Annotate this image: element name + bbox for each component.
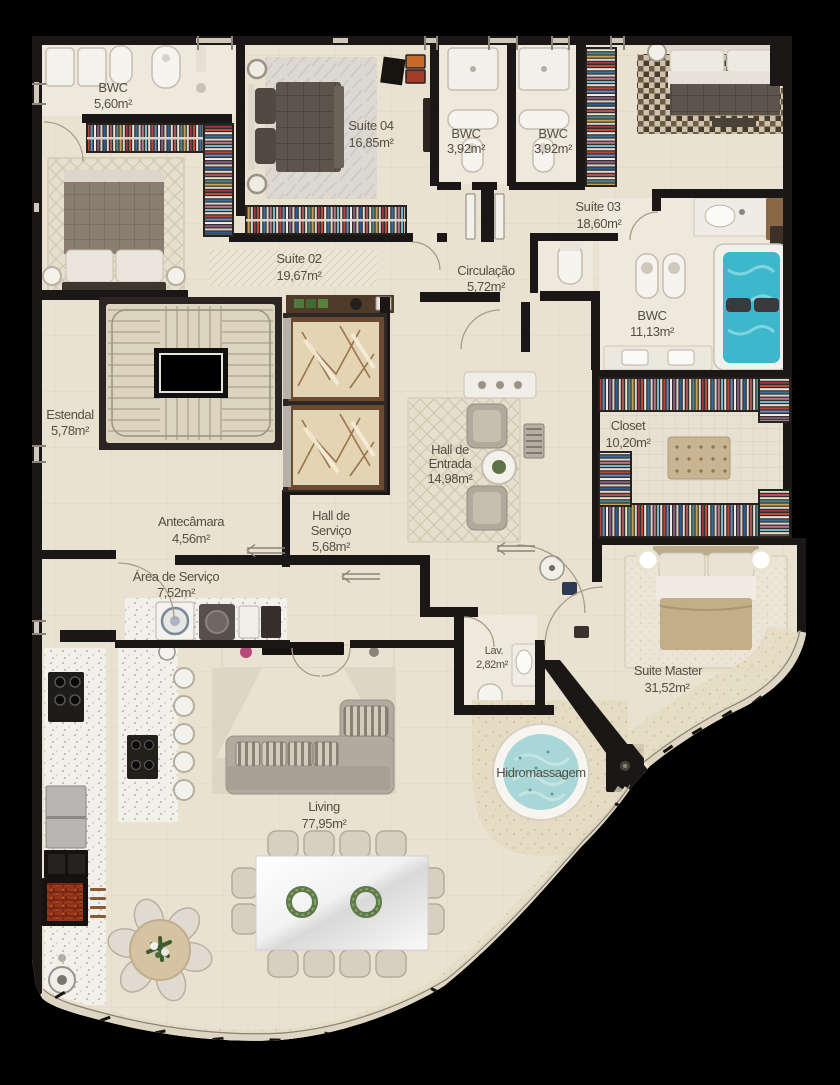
svg-text:10,20m²: 10,20m² <box>606 435 652 450</box>
svg-text:4,56m²: 4,56m² <box>172 531 211 546</box>
svg-text:Área de Serviço: Área de Serviço <box>133 569 220 584</box>
svg-text:Suíte 03: Suíte 03 <box>575 199 620 214</box>
svg-text:Suite Master: Suite Master <box>634 663 703 678</box>
svg-text:Serviço: Serviço <box>311 523 352 538</box>
svg-text:2,82m²: 2,82m² <box>476 659 509 671</box>
svg-text:Living: Living <box>308 799 340 814</box>
svg-text:77,95m²: 77,95m² <box>302 816 348 831</box>
svg-text:7,52m²: 7,52m² <box>157 585 196 600</box>
svg-text:BWC: BWC <box>637 308 666 323</box>
svg-text:5,60m²: 5,60m² <box>94 96 133 111</box>
svg-text:18,60m²: 18,60m² <box>577 216 623 231</box>
svg-text:Suíte 02: Suíte 02 <box>276 251 321 266</box>
svg-text:Circulação: Circulação <box>457 263 515 278</box>
svg-text:Lav.: Lav. <box>485 645 504 657</box>
svg-text:5,68m²: 5,68m² <box>312 539 351 554</box>
svg-text:BWC: BWC <box>98 80 127 95</box>
svg-text:3,92m²: 3,92m² <box>534 141 573 156</box>
svg-text:Hidromassagem: Hidromassagem <box>496 765 585 780</box>
svg-text:11,13m²: 11,13m² <box>630 324 675 339</box>
svg-text:BWC: BWC <box>451 126 480 141</box>
svg-text:14,98m²: 14,98m² <box>428 471 474 486</box>
svg-text:31,52m²: 31,52m² <box>645 680 691 695</box>
svg-text:Suíte 04: Suíte 04 <box>348 118 393 133</box>
svg-text:Hall de: Hall de <box>431 442 469 457</box>
svg-text:19,67m²: 19,67m² <box>277 268 323 283</box>
svg-text:Entrada: Entrada <box>429 456 473 471</box>
svg-text:5,72m²: 5,72m² <box>467 279 506 294</box>
svg-text:BWC: BWC <box>538 126 567 141</box>
svg-text:16,85m²: 16,85m² <box>349 135 395 150</box>
svg-text:Estendal: Estendal <box>46 407 94 422</box>
svg-text:Hall de: Hall de <box>312 508 350 523</box>
svg-text:Closet: Closet <box>611 418 646 433</box>
svg-text:Antecâmara: Antecâmara <box>158 514 225 529</box>
svg-text:5,78m²: 5,78m² <box>51 423 90 438</box>
svg-text:3,92m²: 3,92m² <box>447 141 486 156</box>
